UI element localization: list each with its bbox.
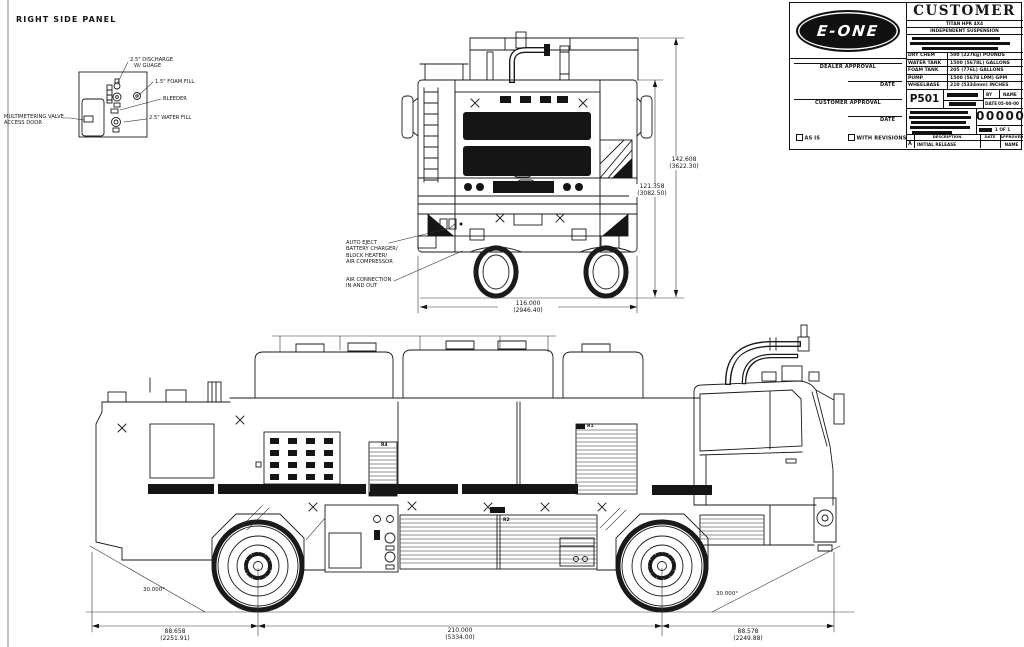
dim-front-overhang-mm: (2249.88) — [718, 636, 778, 643]
label-r1: R1 — [587, 424, 594, 429]
by-label: BY — [986, 92, 992, 97]
callout-discharge-line2: W/ GUAGE — [134, 63, 161, 69]
dim-rear-overhang: 88.658 (2251.91) — [145, 629, 205, 642]
date-value: 05-00-00 — [998, 101, 1019, 106]
callout-foam-fill: 1.5" FOAM FILL — [155, 79, 194, 85]
callout-auto-eject-line4: AIR COMPRESSOR — [346, 259, 398, 265]
spec-row-water-tank: WATER TANK 1500 (5678L) GALLONS — [906, 60, 1023, 68]
rev-approved-header: APPROVED — [1000, 135, 1023, 140]
spec-value: 1500 (5678L) GALLONS — [948, 60, 1023, 67]
as-is-checkbox — [796, 134, 803, 141]
spec-value: 1500 (5678 LPM) GPM — [948, 75, 1023, 82]
redacted-bar — [910, 126, 970, 129]
sheet-label: 1 OF 1 — [995, 127, 1010, 132]
spec-label: WHEELBASE — [906, 82, 948, 89]
spec-row-wheelbase: WHEELBASE 210 (5334mm) INCHES — [906, 82, 1023, 90]
dealer-date-label: DATE — [880, 83, 895, 89]
redacted-bar — [909, 116, 971, 119]
callout-air-connection: AIR CONNECTION IN AND OUT — [346, 277, 391, 290]
rev-letter: A — [906, 142, 914, 148]
customer-heading: CUSTOMER — [906, 4, 1023, 19]
redacted-bar — [912, 37, 1000, 41]
rev-description-header: DESCRIPTION — [914, 135, 980, 140]
angle-rear: 30.000° — [143, 587, 165, 593]
spec-label: PUMP — [906, 75, 948, 82]
callout-air-connection-line2: IN AND OUT — [346, 283, 391, 289]
label-r2: R2 — [503, 518, 510, 523]
dim-rear-overhang-mm: (2251.91) — [145, 636, 205, 643]
spec-label: FOAM TANK — [906, 67, 948, 74]
with-revisions-option: WITH REVISIONS — [848, 134, 907, 142]
customer-approval-label: CUSTOMER APPROVAL — [790, 101, 906, 107]
redacted-bar — [979, 128, 992, 132]
part-code: P501 — [906, 92, 943, 106]
eone-logo: E-ONE — [796, 10, 900, 52]
redacted-bar — [922, 47, 998, 50]
spec-row-foam-tank: FOAM TANK 205 (776L) GALLONS — [906, 67, 1023, 75]
dim-front-overhang: 88.578 (2249.88) — [718, 629, 778, 642]
dim-wheelbase: 210.000 (5334.00) — [420, 628, 500, 641]
spec-value: 205 (776L) GALLONS — [948, 67, 1023, 74]
dim-rear-width: 116.000 (2946.40) — [498, 301, 558, 314]
drawing-number: 00000 — [976, 110, 1023, 123]
redacted-bar — [910, 42, 1010, 46]
drawing-sheet: RIGHT SIDE PANEL 2.5" DISCHARGE W/ GUAGE… — [0, 0, 1024, 647]
title-block: E-ONE DEALER APPROVAL DATE CUSTOMER APPR… — [789, 2, 1022, 150]
dim-overall-height: 142.608 (3622.30) — [661, 157, 707, 170]
with-revisions-label: WITH REVISIONS — [857, 136, 907, 142]
rev-description: INITIAL RELEASE — [917, 142, 956, 147]
callout-water-fill: 2.5" WATER FILL — [149, 115, 191, 121]
as-is-option: AS IS — [796, 134, 820, 142]
rear-view-linework — [389, 32, 684, 313]
name-label: NAME — [1003, 92, 1017, 97]
spec-row-pump: PUMP 1500 (5678 LPM) GPM — [906, 75, 1023, 83]
label-r4: R4 — [381, 443, 388, 448]
redacted-bar — [910, 111, 968, 114]
model-name: TITAN HPR 4X4 — [906, 22, 1023, 27]
logo-cell: E-ONE — [790, 3, 906, 59]
callout-bleeder: BLEEDER — [163, 96, 187, 102]
suspension-note: INDEPENDENT SUSPENSION — [906, 29, 1023, 34]
as-is-label: AS IS — [805, 136, 821, 142]
side-view-linework — [86, 325, 854, 636]
dealer-approval-label: DEALER APPROVAL — [790, 65, 906, 71]
dim-body-height: 121.358 (3082.50) — [629, 184, 675, 197]
with-revisions-checkbox — [848, 134, 855, 141]
customer-date-label: DATE — [880, 118, 895, 124]
date-field-label: DATE — [985, 101, 997, 106]
callout-auto-eject-line2: BATTERY CHARGER/ — [346, 246, 398, 252]
panel-detail-title: RIGHT SIDE PANEL — [16, 15, 116, 24]
rev-name: NAME — [1000, 142, 1023, 147]
redacted-bar — [911, 121, 966, 124]
panel-detail-linework — [63, 62, 161, 137]
spec-label: DRY CHEM — [906, 52, 948, 59]
spec-label: WATER TANK — [906, 60, 948, 67]
angle-front: 30.000° — [716, 591, 738, 597]
callout-multimetering-line2: ACCESS DOOR — [4, 120, 42, 126]
callout-auto-eject: AUTO EJECT BATTERY CHARGER/ BLOCK HEATER… — [346, 240, 398, 265]
eone-logo-text: E-ONE — [816, 22, 880, 40]
dim-rear-width-mm: (2946.40) — [498, 308, 558, 315]
redacted-bar — [947, 93, 978, 98]
spec-row-dry-chem: DRY CHEM 500 (227kg) POUNDS — [906, 52, 1023, 60]
dim-body-height-mm: (3082.50) — [629, 191, 675, 198]
redacted-bar — [949, 102, 976, 106]
spec-value: 210 (5334mm) INCHES — [948, 82, 1023, 89]
dim-overall-height-mm: (3622.30) — [661, 164, 707, 171]
dim-wheelbase-mm: (5334.00) — [420, 635, 500, 642]
rev-date-header: DATE — [980, 135, 1000, 140]
spec-value: 500 (227kg) POUNDS — [948, 52, 1023, 59]
